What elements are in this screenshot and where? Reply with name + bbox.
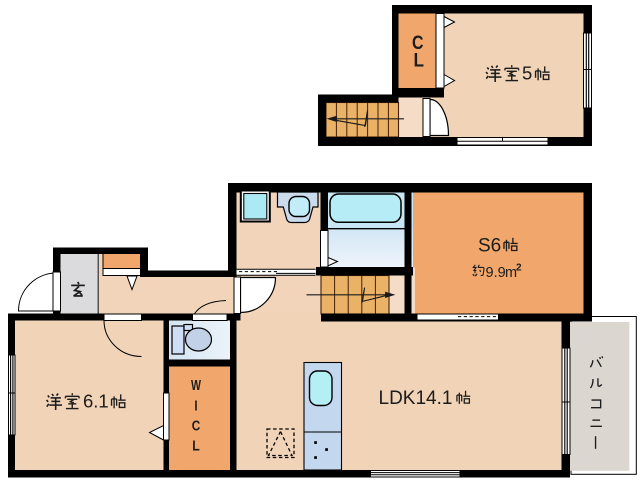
svg-text:W: W [191,378,201,394]
svg-text:9.9: 9.9 [486,265,506,281]
svg-text:6.1: 6.1 [83,391,109,412]
svg-text:L: L [414,51,425,72]
svg-text:L: L [192,439,200,455]
svg-text:5: 5 [522,63,532,84]
svg-text:C: C [192,419,201,435]
svg-text:I: I [194,399,197,415]
svg-text:LDK14.1: LDK14.1 [379,388,453,409]
svg-text:S6: S6 [478,236,501,257]
svg-text:2: 2 [516,263,522,274]
